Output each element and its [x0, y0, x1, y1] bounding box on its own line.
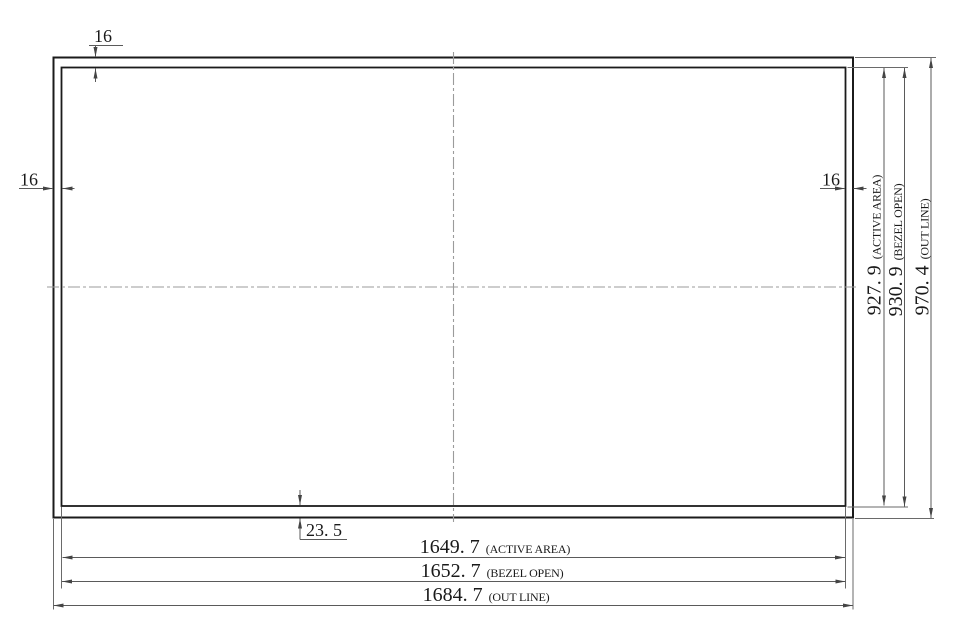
dim-bezel-bottom: 23. 5: [300, 490, 347, 540]
dim-label: (BEZEL OPEN): [487, 566, 564, 580]
drawing-svg: 16 16 16 23. 5 927. 9(ACTIVE AREA) 930. …: [0, 0, 967, 634]
dim-height-out-line-text: 970. 4(OUT LINE): [912, 198, 934, 315]
dim-value: 1684. 7: [423, 584, 483, 606]
dim-label: (OUT LINE): [918, 198, 932, 259]
panel-body: [47, 52, 856, 522]
dim-bezel-top-value: 16: [94, 26, 112, 46]
dim-bezel-top: 16: [89, 26, 123, 82]
dim-value: 970. 4: [912, 265, 934, 315]
dim-bezel-left: 16: [19, 170, 75, 190]
dim-width-out-line-text: 1684. 7(OUT LINE): [423, 584, 550, 606]
dim-width-active-area-text: 1649. 7(ACTIVE AREA): [420, 536, 571, 558]
panel-dimension-drawing: 16 16 16 23. 5 927. 9(ACTIVE AREA) 930. …: [0, 0, 967, 634]
dim-height-active-area: 927. 9(ACTIVE AREA): [864, 68, 886, 506]
dim-height-bezel-open-text: 930. 9(BEZEL OPEN): [885, 183, 907, 316]
dim-label: (OUT LINE): [489, 590, 550, 604]
dim-width-active-area: 1649. 7(ACTIVE AREA): [63, 536, 846, 558]
dim-width-out-line: 1684. 7(OUT LINE): [54, 584, 854, 606]
dim-value: 1652. 7: [421, 560, 481, 582]
dim-label: (BEZEL OPEN): [891, 183, 905, 260]
dim-height-out-line: 970. 4(OUT LINE): [912, 58, 934, 518]
dim-height-active-area-text: 927. 9(ACTIVE AREA): [864, 175, 886, 316]
dim-bezel-bottom-value: 23. 5: [306, 520, 342, 540]
dim-width-bezel-open: 1652. 7(BEZEL OPEN): [62, 560, 846, 582]
dim-height-bezel-open: 930. 9(BEZEL OPEN): [885, 68, 907, 507]
dim-value: 1649. 7: [420, 536, 480, 558]
dim-value: 930. 9: [885, 266, 907, 316]
dim-label: (ACTIVE AREA): [486, 542, 571, 556]
dim-bezel-right: 16: [820, 170, 867, 190]
dim-bezel-right-value: 16: [822, 170, 840, 190]
dim-label: (ACTIVE AREA): [870, 175, 884, 260]
dim-bezel-left-value: 16: [20, 170, 38, 190]
dim-value: 927. 9: [864, 265, 886, 315]
dim-width-bezel-open-text: 1652. 7(BEZEL OPEN): [421, 560, 564, 582]
